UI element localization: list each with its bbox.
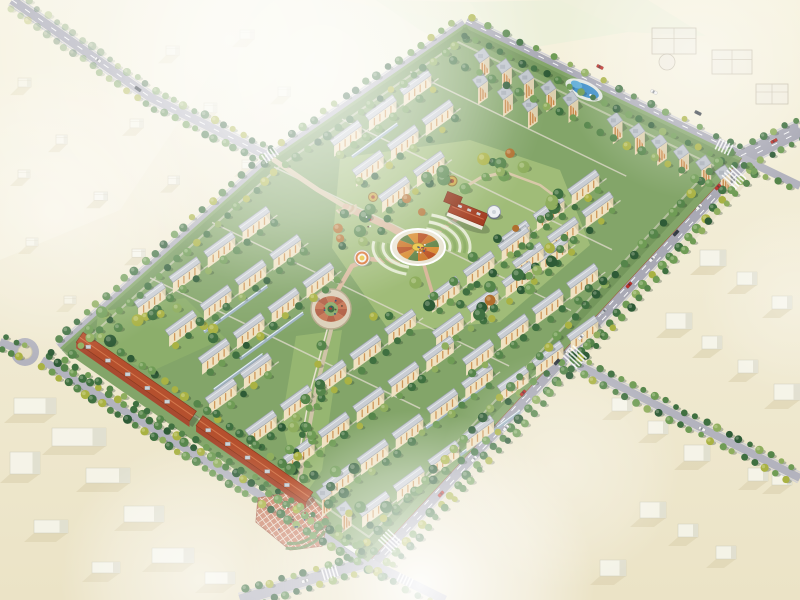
haze-patch bbox=[440, 350, 680, 590]
architectural-rendering bbox=[0, 0, 800, 600]
masterplan-aerial-view bbox=[0, 0, 800, 600]
